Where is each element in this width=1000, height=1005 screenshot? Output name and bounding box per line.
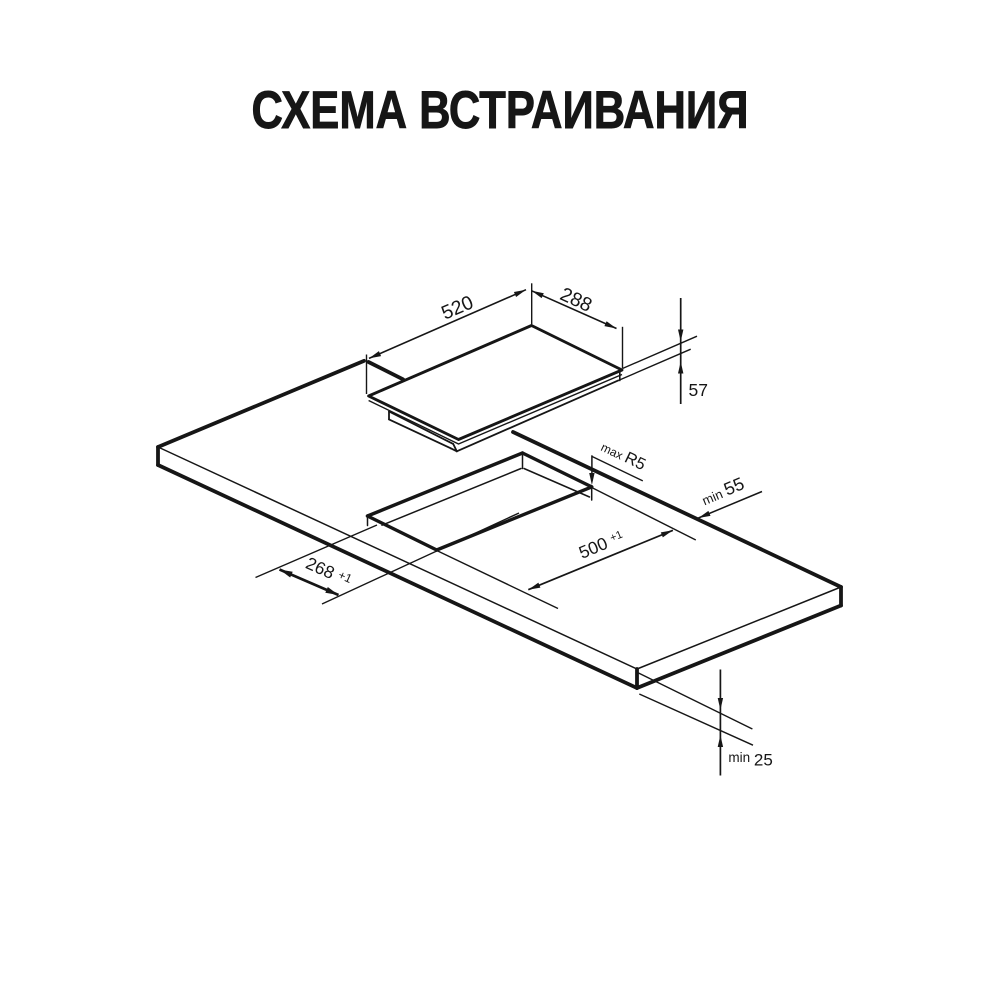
svg-text:СХЕМА ВСТРАИВАНИЯ: СХЕМА ВСТРАИВАНИЯ bbox=[252, 81, 749, 140]
svg-text:57: 57 bbox=[689, 380, 708, 400]
